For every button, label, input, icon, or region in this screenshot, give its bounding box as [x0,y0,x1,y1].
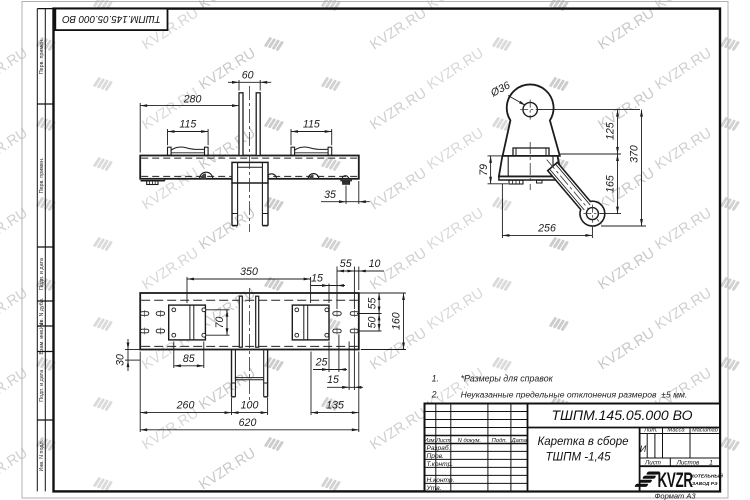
svg-text:165: 165 [605,175,617,193]
svg-text:85: 85 [183,353,195,365]
svg-text:Т.контр.: Т.контр. [427,461,454,468]
svg-text:2.: 2. [431,390,439,400]
svg-text:ЗАВОД РЭ: ЗАВОД РЭ [692,481,718,487]
svg-text:*Размеры для справок: *Размеры для справок [461,374,554,384]
svg-text:55: 55 [340,258,352,270]
svg-text:Каретка в сборе: Каретка в сборе [537,436,628,448]
svg-text:350: 350 [240,266,258,278]
svg-text:Изм.: Изм. [424,438,436,444]
svg-text:135: 135 [326,400,344,412]
svg-text:Лист: Лист [435,438,451,444]
svg-text:Взам. инв. N: Взам. инв. N [39,323,45,355]
svg-text:Подп. и дата: Подп. и дата [39,258,45,290]
svg-text:60: 60 [242,69,254,81]
svg-text:115: 115 [179,119,196,131]
svg-text:260: 260 [176,400,195,412]
svg-text:Дата: Дата [511,438,528,444]
svg-text:Инв. N подл.: Инв. N подл. [39,440,45,472]
svg-text:125: 125 [605,122,617,140]
svg-text:ТШПМ -1,45: ТШПМ -1,45 [546,452,612,464]
svg-text:55: 55 [366,298,378,310]
svg-text:370: 370 [629,145,641,163]
svg-text:Лит.: Лит. [643,428,658,434]
svg-text:Пров.: Пров. [427,453,445,460]
svg-text:256: 256 [537,223,556,235]
svg-text:Н.контр.: Н.контр. [427,477,455,484]
svg-text:Масса: Масса [667,428,685,434]
svg-text:25: 25 [315,357,328,369]
svg-text:И: И [640,444,647,454]
svg-text:15: 15 [327,374,339,386]
svg-text:70: 70 [214,317,226,329]
svg-text:Перв. примен.: Перв. примен. [39,158,45,194]
svg-text:10: 10 [369,258,381,270]
svg-text:Перв. примен.: Перв. примен. [39,38,45,74]
svg-text:Разраб.: Разраб. [427,444,451,452]
svg-text:30: 30 [115,354,127,366]
svg-text:115: 115 [303,119,320,131]
svg-text:ТШПМ.145.05.000 ВО: ТШПМ.145.05.000 ВО [551,407,692,423]
svg-text:Подп.: Подп. [492,438,507,444]
svg-text:1.: 1. [432,374,439,384]
svg-text:Неуказанные предельные отклоне: Неуказанные предельные отклонения размер… [461,390,688,400]
svg-text:100: 100 [241,400,259,412]
svg-text:Формат А3: Формат А3 [654,492,696,500]
svg-text:620: 620 [239,417,257,429]
svg-text:Листов: Листов [676,459,700,466]
svg-text:1: 1 [709,459,713,466]
svg-text:50: 50 [366,317,378,329]
svg-text:160: 160 [391,312,403,330]
svg-text:15: 15 [311,273,323,285]
svg-text:N докум.: N докум. [458,438,481,444]
svg-text:Лист: Лист [644,459,661,466]
svg-text:Подп. и дата: Подп. и дата [39,370,45,402]
svg-text:280: 280 [183,94,202,106]
svg-text:Масштаб: Масштаб [692,428,719,434]
svg-text:79: 79 [478,164,490,176]
svg-text:35: 35 [324,189,336,201]
svg-text:Утв.: Утв. [426,485,442,492]
svg-text:KVZR: KVZR [658,468,694,492]
svg-text:ТШПМ.145.05.000 ВО: ТШПМ.145.05.000 ВО [62,13,161,24]
